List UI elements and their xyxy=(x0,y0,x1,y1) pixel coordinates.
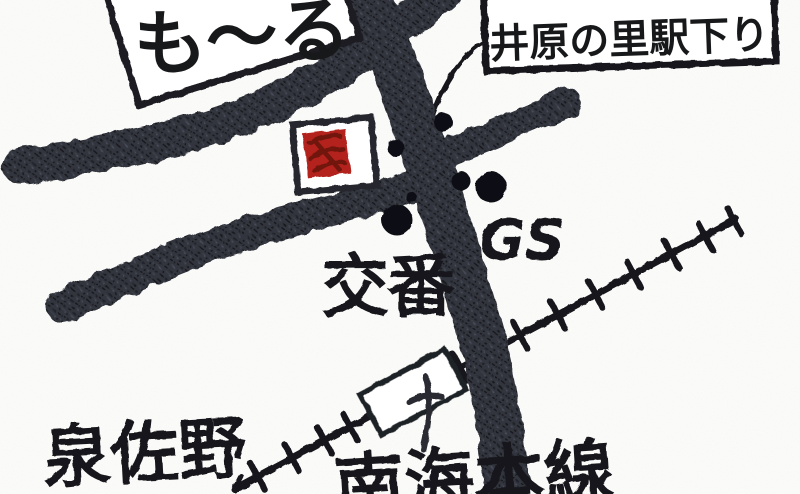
landmark-dot xyxy=(388,140,405,157)
gas-station-label: GS xyxy=(479,208,565,273)
hand-drawn-map: も〜る 井原の里駅下り 交番 GS 泉佐野 南海本線 xyxy=(0,0,800,494)
landmark-dot xyxy=(406,192,417,203)
landmark-dot-police-box xyxy=(382,205,413,236)
destination-marker-box xyxy=(292,118,377,193)
police-box-label: 交番 xyxy=(321,248,455,327)
landmark-dot xyxy=(434,113,453,132)
station-sign-board: 井原の里駅下り xyxy=(483,0,776,71)
destination-marker-red-square xyxy=(302,128,350,178)
landmark-dot-gas-station xyxy=(476,172,507,203)
landmark-dot xyxy=(452,172,471,191)
city-label: 泉佐野 xyxy=(41,409,249,494)
station-sign-label: 井原の里駅下り xyxy=(489,12,770,68)
map-canvas: も〜る 井原の里駅下り 交番 GS 泉佐野 南海本線 xyxy=(0,0,800,494)
